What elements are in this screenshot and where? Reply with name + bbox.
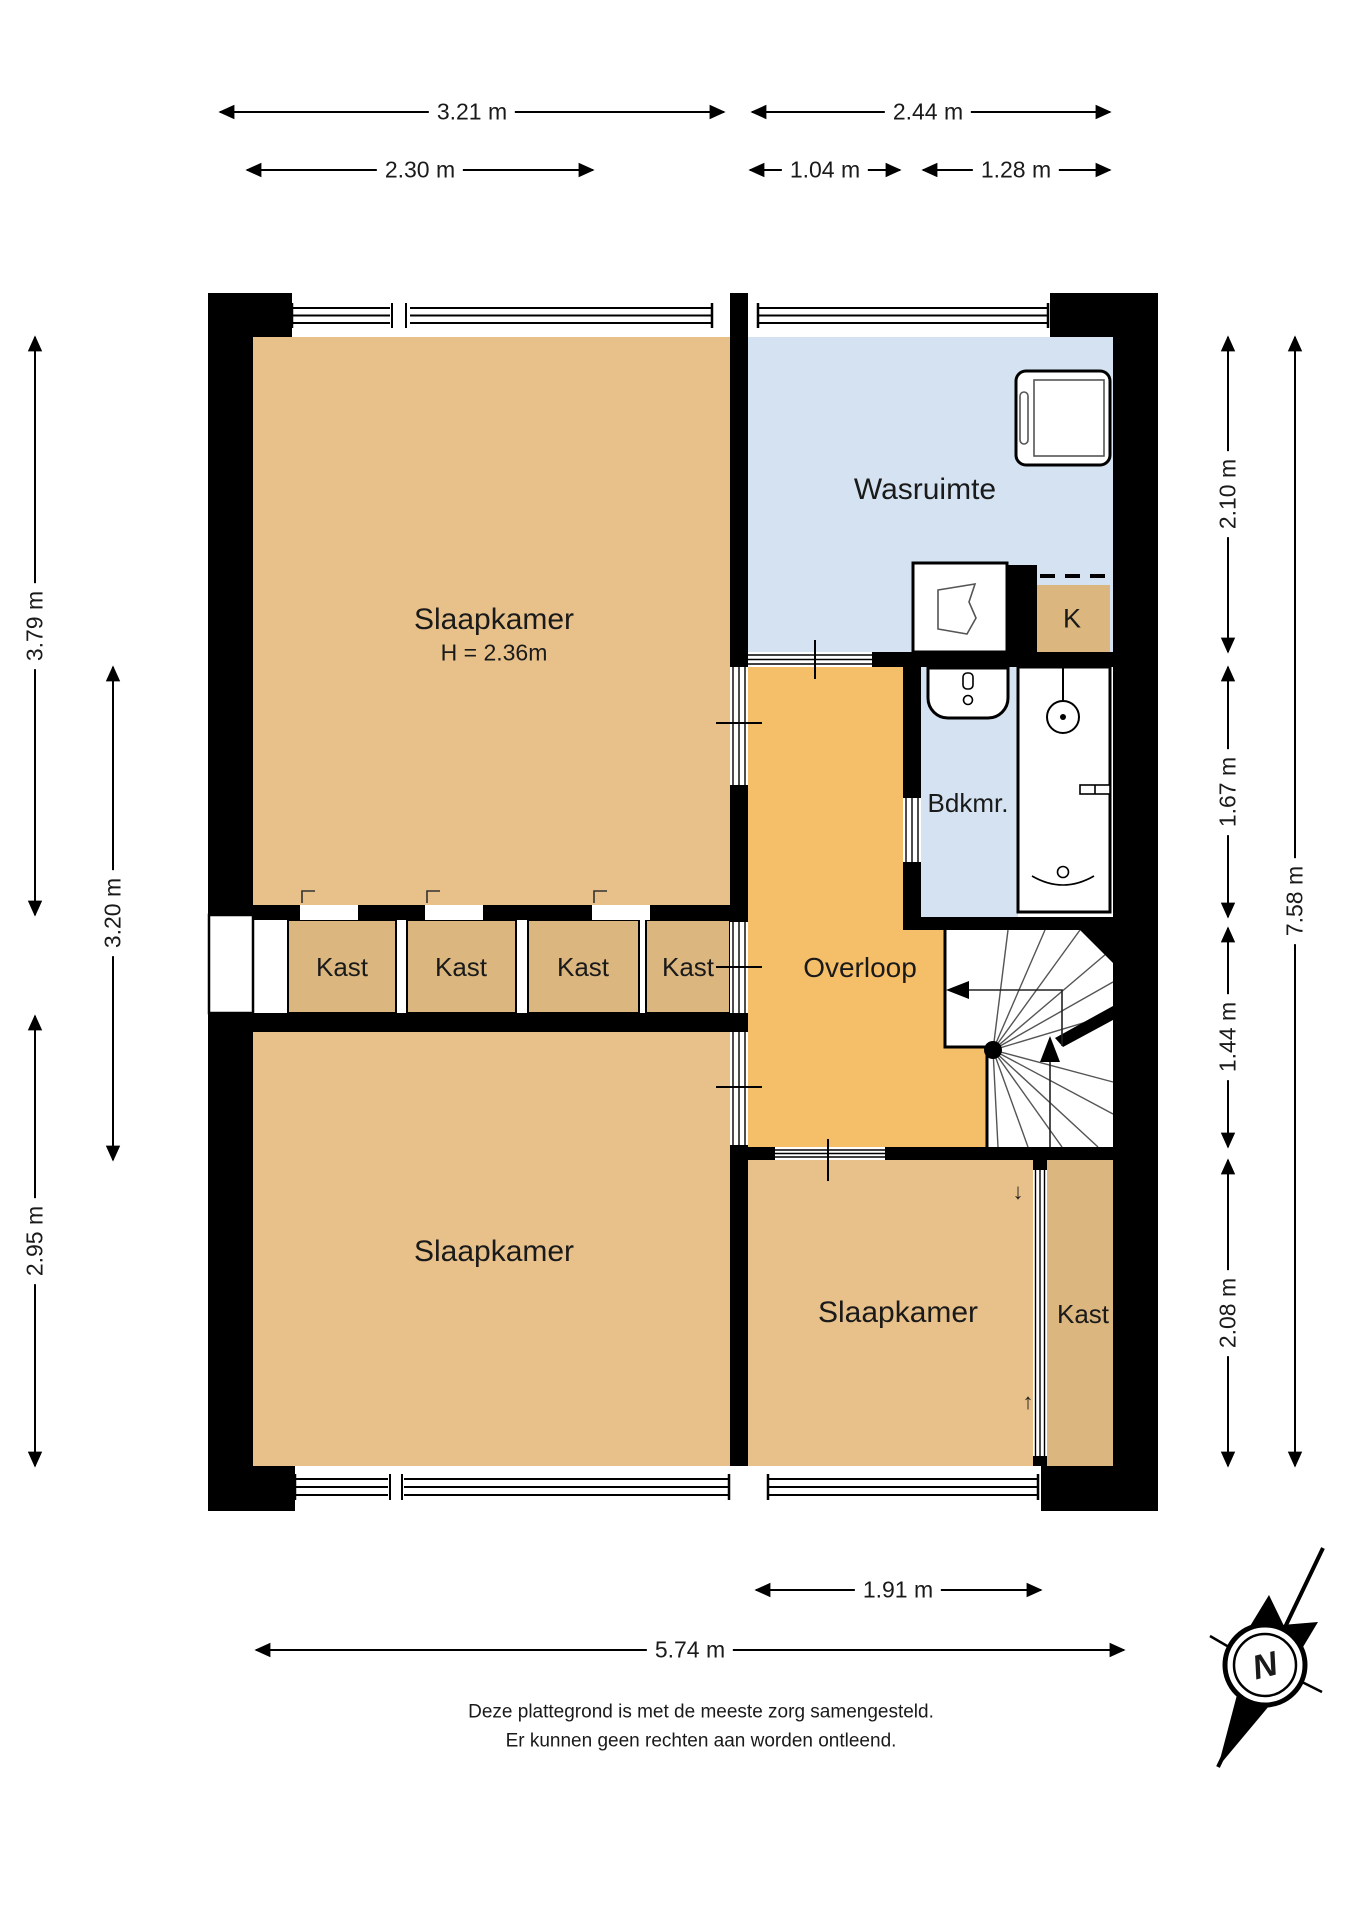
room-label-closet-k: K <box>1063 606 1081 633</box>
stair-newel-post <box>984 1041 1002 1059</box>
room-label-bedroom-bottom-right: Slaapkamer <box>818 1298 978 1328</box>
wall-bathroom-bottom <box>903 917 1113 930</box>
window-bottom-left-icon <box>295 1473 729 1501</box>
toilet-icon <box>913 563 1007 652</box>
dim-label-128: 1.28 m <box>973 158 1059 183</box>
wall-right <box>1113 293 1158 1511</box>
dim-label-574: 5.74 m <box>647 1638 733 1663</box>
bathroom-door-opening <box>903 798 921 862</box>
dim-label-379: 3.79 m <box>23 583 48 669</box>
dim-label-208: 2.08 m <box>1216 1270 1241 1356</box>
wall-middle-lower <box>730 1145 748 1466</box>
wall-corner-bottom-left <box>208 1466 295 1511</box>
dim-label-167: 1.67 m <box>1216 749 1241 835</box>
closet1-door-opening <box>300 905 358 920</box>
dim-label-295: 2.95 m <box>23 1198 48 1284</box>
wall-corner-top-right <box>1050 293 1158 337</box>
dim-label-144: 1.44 m <box>1216 994 1241 1080</box>
shower-icon <box>1018 667 1110 912</box>
dim-label-230: 2.30 m <box>377 158 463 183</box>
room-label-closet-4: Kast <box>662 954 714 980</box>
room-label-bedroom-top-left: Slaapkamer <box>414 605 574 635</box>
room-label-bathroom: Bdkmr. <box>928 790 1009 816</box>
floorplan-page: Slaapkamer H = 2.36m Wasruimte K Bdkmr. … <box>0 0 1358 1920</box>
room-label-bedroom-bottom-left: Slaapkamer <box>414 1237 574 1267</box>
window-top-right-icon <box>758 303 1048 328</box>
wall-slider-stub-bottom <box>1033 1456 1047 1466</box>
room-label-laundry: Wasruimte <box>854 475 996 505</box>
wall-slider-stub-top <box>1033 1160 1047 1170</box>
room-fills <box>253 337 1113 1466</box>
sink-icon <box>928 668 1008 718</box>
window-top-left-icon <box>292 302 712 330</box>
wall-left <box>208 293 253 1511</box>
wall-corner-bottom-right <box>1041 1466 1158 1511</box>
stair-mid-wedge <box>1055 1006 1113 1047</box>
stair-arrow-left-icon <box>946 981 969 999</box>
dim-label-210: 2.10 m <box>1216 451 1241 537</box>
window-bottom-right-icon <box>768 1474 1038 1500</box>
room-label-closet-2: Kast <box>435 954 487 980</box>
dim-label-244: 2.44 m <box>885 100 971 125</box>
room-label-closet-3: Kast <box>557 954 609 980</box>
stair-treads <box>993 930 1113 1147</box>
disclaimer-line-2: Er kunnen geen rechten aan worden ontlee… <box>506 1732 897 1751</box>
dim-label-321: 3.21 m <box>429 100 515 125</box>
wall-middle-mid <box>730 785 748 922</box>
wall-toilet-stub <box>1007 565 1037 652</box>
wall-corner-top-left <box>208 293 292 337</box>
wall-middle-upper <box>730 293 748 667</box>
dim-label-191: 1.91 m <box>855 1578 941 1603</box>
disclaimer-line-1: Deze plattegrond is met de meeste zorg s… <box>468 1703 934 1722</box>
dim-label-104: 1.04 m <box>782 158 868 183</box>
dim-label-758: 7.58 m <box>1283 858 1308 944</box>
dim-label-320: 3.20 m <box>101 870 126 956</box>
room-label-closet-1: Kast <box>316 954 368 980</box>
wall-middle-stub <box>730 1013 748 1032</box>
room-label-landing: Overloop <box>803 954 917 982</box>
slide-direction-up-icon: ↑ <box>1023 1391 1034 1413</box>
stair-corner-wedge <box>1080 930 1113 963</box>
wall-closet-row-bottom <box>253 1013 730 1032</box>
closet2-door-opening <box>425 905 483 920</box>
sliding-door-icon <box>1033 1170 1047 1456</box>
room-height-note: H = 2.36m <box>441 642 548 665</box>
room-label-closet-bottom-right: Kast <box>1057 1301 1109 1327</box>
washing-machine-icon <box>1016 371 1110 465</box>
slide-direction-down-icon: ↓ <box>1013 1181 1024 1203</box>
window-left-wall-icon <box>209 915 253 1013</box>
closet3-door-opening <box>592 905 650 920</box>
